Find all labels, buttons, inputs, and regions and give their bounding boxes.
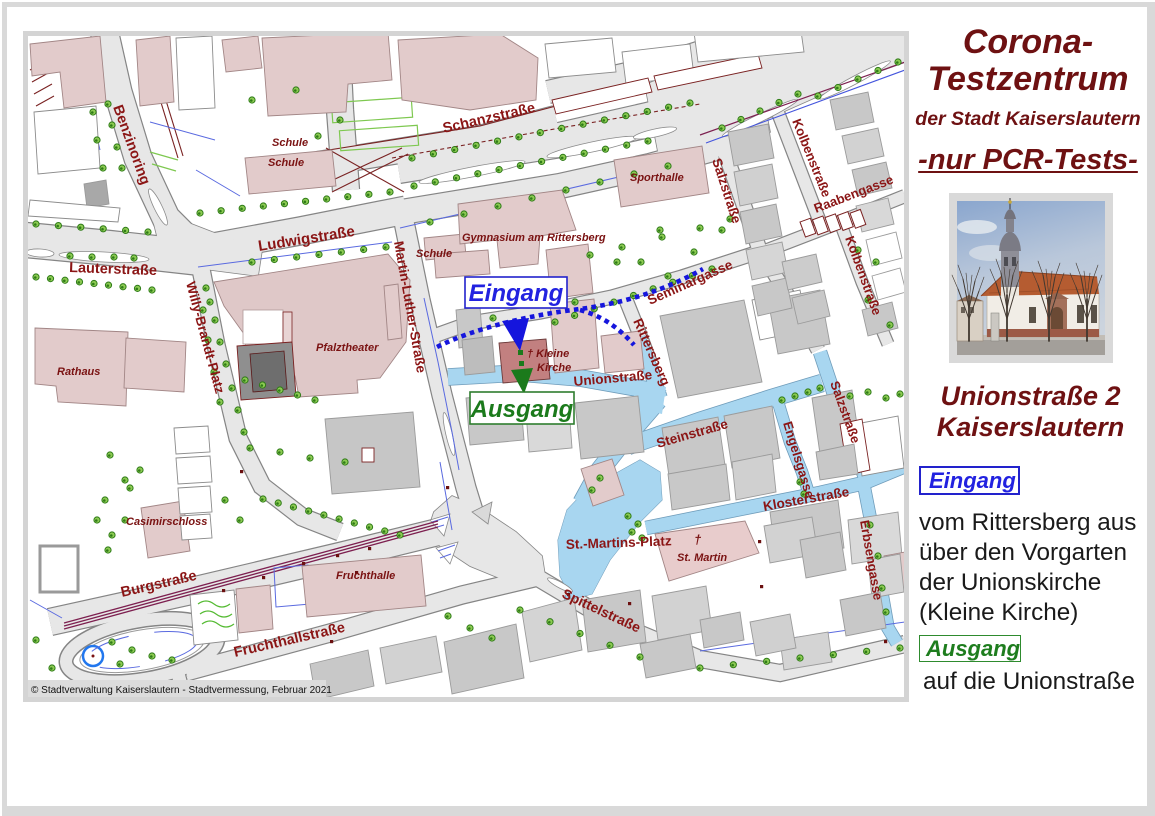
svg-text:Lauterstraße: Lauterstraße: [69, 260, 157, 279]
svg-text:Kirche: Kirche: [537, 362, 571, 374]
svg-text:Pfalztheater: Pfalztheater: [316, 342, 379, 354]
svg-text:Rathaus: Rathaus: [57, 366, 100, 378]
svg-text:Schule: Schule: [272, 137, 308, 149]
svg-text:Schule: Schule: [416, 248, 452, 260]
svg-text:† Kleine: † Kleine: [527, 348, 569, 360]
svg-text:Casimirschloss: Casimirschloss: [126, 516, 207, 528]
svg-text:Sporthalle: Sporthalle: [630, 172, 684, 184]
svg-text:St. Martin: St. Martin: [677, 552, 727, 564]
svg-text:Gymnasium am Rittersberg: Gymnasium am Rittersberg: [462, 232, 606, 244]
svg-text:Eingang: Eingang: [469, 280, 564, 307]
svg-text:Schule: Schule: [268, 157, 304, 169]
svg-text:†: †: [694, 532, 702, 547]
svg-text:Ausgang: Ausgang: [470, 396, 574, 423]
svg-text:Fruchthalle: Fruchthalle: [336, 570, 395, 582]
svg-text:© Stadtverwaltung Kaiserslaute: © Stadtverwaltung Kaiserslautern - Stadt…: [31, 685, 332, 696]
